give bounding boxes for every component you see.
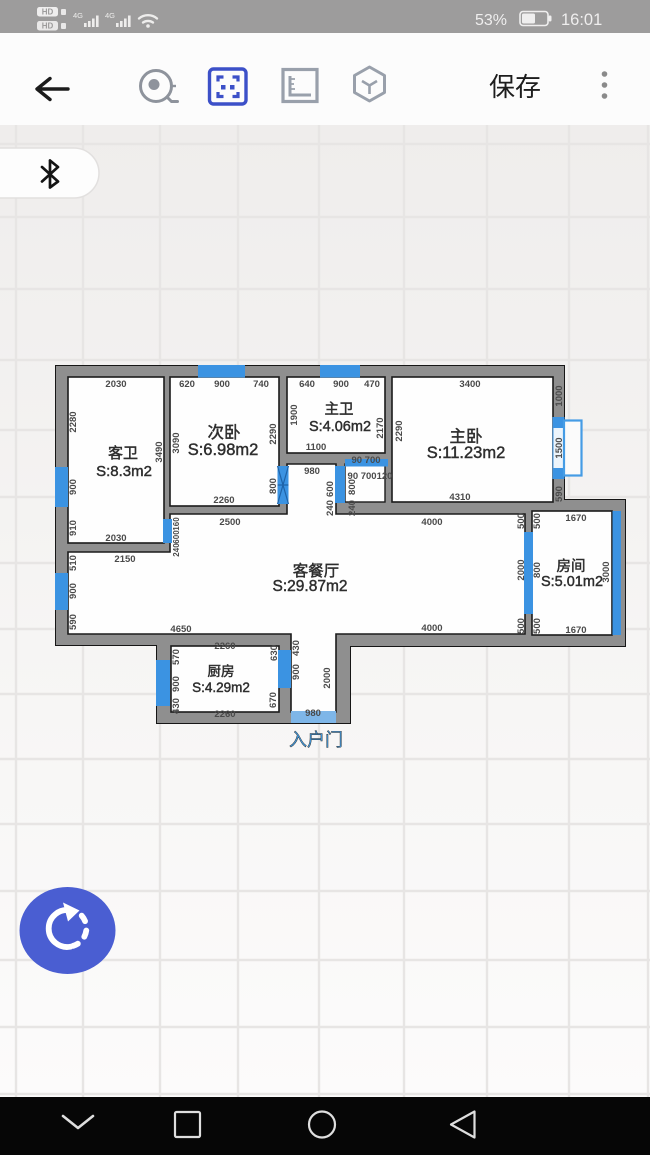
- svg-text:500: 500: [516, 618, 527, 634]
- svg-text:590: 590: [554, 486, 565, 502]
- svg-text:3090: 3090: [171, 432, 182, 453]
- svg-text:入户门: 入户门: [289, 730, 343, 750]
- svg-text:430: 430: [171, 698, 182, 714]
- svg-text:90 700: 90 700: [351, 455, 380, 466]
- svg-text:保存: 保存: [489, 72, 541, 102]
- svg-text:600: 600: [172, 530, 181, 544]
- svg-text:900: 900: [68, 479, 79, 495]
- svg-text:房间: 房间: [557, 558, 586, 575]
- svg-text:1900: 1900: [289, 404, 300, 425]
- svg-text:160: 160: [172, 517, 181, 531]
- svg-text:2000: 2000: [322, 667, 333, 688]
- svg-text:53%: 53%: [475, 12, 507, 29]
- svg-text:240: 240: [347, 500, 358, 516]
- svg-text:2290: 2290: [268, 423, 279, 444]
- svg-text:客卫: 客卫: [108, 445, 138, 462]
- svg-text:900: 900: [214, 379, 230, 390]
- svg-text:240: 240: [325, 500, 336, 516]
- svg-text:S:29.87m2: S:29.87m2: [273, 578, 348, 595]
- svg-text:1100: 1100: [306, 442, 327, 453]
- svg-text:2150: 2150: [114, 554, 135, 565]
- svg-text:2290: 2290: [394, 420, 405, 441]
- svg-text:4G: 4G: [105, 11, 115, 20]
- svg-text:4000: 4000: [421, 517, 442, 528]
- svg-text:2260: 2260: [213, 495, 234, 506]
- svg-text:510: 510: [68, 555, 79, 571]
- svg-text:2260: 2260: [214, 641, 235, 652]
- svg-text:980: 980: [304, 466, 320, 477]
- svg-text:S:4.29m2: S:4.29m2: [192, 680, 250, 695]
- svg-text:S:4.06m2: S:4.06m2: [309, 419, 371, 435]
- svg-text:4650: 4650: [170, 624, 191, 635]
- svg-text:900: 900: [68, 583, 79, 599]
- svg-text:1500: 1500: [554, 437, 565, 458]
- svg-text:500: 500: [532, 618, 543, 634]
- svg-text:910: 910: [68, 520, 79, 536]
- svg-text:590: 590: [68, 614, 79, 630]
- svg-text:570: 570: [171, 649, 182, 665]
- svg-text:2500: 2500: [219, 517, 240, 528]
- svg-text:S:11.23m2: S:11.23m2: [427, 444, 506, 462]
- svg-text:4000: 4000: [421, 623, 442, 634]
- svg-text:630: 630: [269, 645, 280, 661]
- svg-text:HD: HD: [42, 22, 54, 31]
- svg-text:2030: 2030: [105, 379, 126, 390]
- svg-text:740: 740: [253, 379, 269, 390]
- svg-text:900: 900: [171, 676, 182, 692]
- svg-text:3400: 3400: [459, 379, 480, 390]
- svg-text:S:5.01m2: S:5.01m2: [541, 574, 603, 590]
- svg-text:1670: 1670: [565, 625, 586, 636]
- svg-text:500: 500: [516, 513, 527, 529]
- svg-text:厨房: 厨房: [208, 664, 235, 679]
- svg-text:800: 800: [268, 478, 279, 494]
- svg-text:4310: 4310: [449, 492, 470, 503]
- svg-text:HD: HD: [42, 8, 54, 17]
- svg-text:800: 800: [347, 479, 358, 495]
- svg-text:S:8.3m2: S:8.3m2: [96, 463, 152, 480]
- svg-text:900: 900: [291, 664, 302, 680]
- svg-text:240: 240: [172, 543, 181, 557]
- svg-text:2280: 2280: [68, 411, 79, 432]
- svg-text:2000: 2000: [516, 559, 527, 580]
- svg-text:470: 470: [364, 379, 380, 390]
- svg-text:600: 600: [325, 481, 336, 497]
- svg-text:900: 900: [333, 379, 349, 390]
- svg-text:次卧: 次卧: [208, 423, 241, 442]
- svg-text:S:6.98m2: S:6.98m2: [188, 441, 259, 459]
- svg-text:3490: 3490: [154, 441, 165, 462]
- svg-text:500: 500: [532, 513, 543, 529]
- svg-text:2260: 2260: [214, 709, 235, 720]
- svg-text:2030: 2030: [105, 533, 126, 544]
- svg-text:主卫: 主卫: [325, 401, 354, 418]
- svg-text:1000: 1000: [554, 385, 565, 406]
- svg-text:1670: 1670: [565, 513, 586, 524]
- svg-text:620: 620: [179, 379, 195, 390]
- svg-text:4G: 4G: [73, 11, 83, 20]
- svg-text:2170: 2170: [375, 417, 386, 438]
- svg-text:670: 670: [268, 692, 279, 708]
- svg-text:16:01: 16:01: [561, 11, 602, 29]
- svg-text:980: 980: [305, 708, 321, 719]
- svg-text:430: 430: [291, 640, 302, 656]
- svg-text:640: 640: [299, 379, 315, 390]
